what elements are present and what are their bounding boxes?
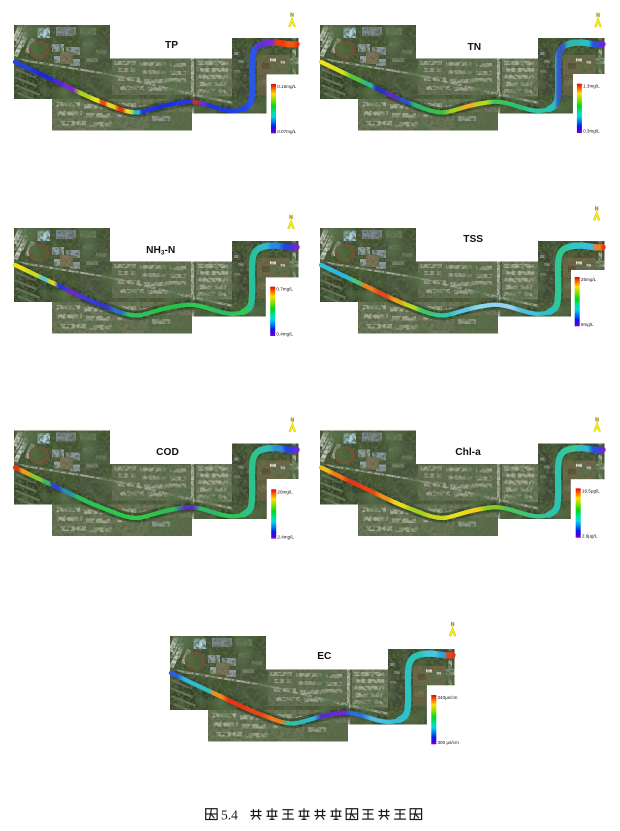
svg-text:TSS: TSS <box>463 234 483 245</box>
svg-text:25mg/L: 25mg/L <box>581 277 597 282</box>
svg-text:0.7mg/L: 0.7mg/L <box>276 287 293 292</box>
svg-text:0.4mg/L: 0.4mg/L <box>276 332 293 337</box>
svg-text:0.3mg/L: 0.3mg/L <box>583 129 600 134</box>
svg-text:20mg/L: 20mg/L <box>277 489 293 494</box>
svg-text:TP: TP <box>165 40 178 51</box>
svg-text:300 μs/cm: 300 μs/cm <box>438 740 459 745</box>
svg-text:TN: TN <box>468 42 482 53</box>
svg-text:2.9μg/L: 2.9μg/L <box>582 533 598 538</box>
svg-text:5.4: 5.4 <box>221 808 238 823</box>
svg-text:2.4mg/L: 2.4mg/L <box>277 534 294 539</box>
svg-text:Chl-a: Chl-a <box>455 447 481 458</box>
svg-text:EC: EC <box>317 651 332 662</box>
svg-text:1.3mg/L: 1.3mg/L <box>583 84 600 89</box>
svg-text:0.15mg/L: 0.15mg/L <box>277 84 297 89</box>
svg-text:NH3-N: NH3-N <box>146 245 175 257</box>
svg-text:340μs/cm: 340μs/cm <box>438 695 458 700</box>
svg-text:9mg/L: 9mg/L <box>581 322 594 327</box>
svg-text:COD: COD <box>156 447 179 458</box>
svg-text:0.07mg/L: 0.07mg/L <box>277 129 297 134</box>
svg-text:16.5μg/L: 16.5μg/L <box>582 488 600 493</box>
